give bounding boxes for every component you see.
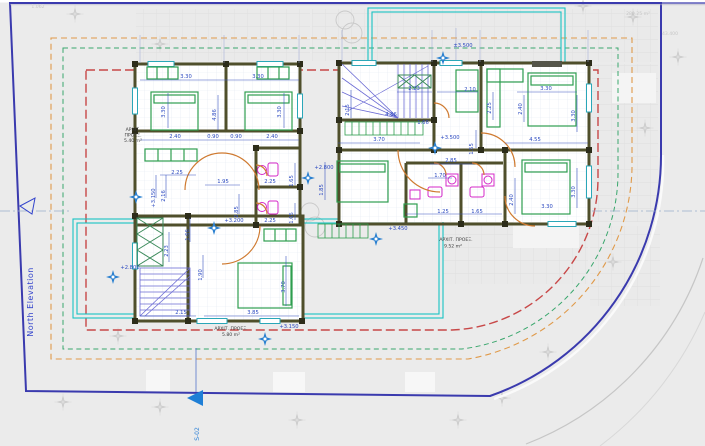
dim-label: 2.40 [518, 103, 524, 115]
dim-label: 2.16 [161, 190, 167, 202]
plot-dim-label: 43.400 [662, 31, 678, 37]
dim-label: 2.85 [445, 158, 457, 164]
level-label: +3.500 [440, 135, 459, 141]
level-label: +3.150 [279, 324, 298, 330]
dim-label: 3.30 [277, 106, 283, 118]
dim-label: 1.65 [289, 175, 295, 187]
dim-label: 2.85 [234, 206, 240, 218]
dim-label: 2.15 [175, 310, 187, 316]
dim-label: 3.85 [247, 310, 259, 316]
projection-area: 5.80 m² [222, 332, 240, 338]
plot-dim-label: 1.062 [31, 4, 44, 10]
level-label: +3.150 [151, 188, 157, 207]
dim-label: 3.70 [373, 137, 385, 143]
dim-label: 0.90 [230, 134, 242, 140]
dim-label: 3.30 [180, 74, 192, 80]
plot-area-label: 280.25 m² [626, 11, 650, 17]
dim-label: 2.23 [408, 86, 420, 92]
dim-label: 1.65 [289, 212, 295, 224]
dim-label: 2.25 [264, 218, 276, 224]
level-label: +2.800 [314, 165, 333, 171]
dim-label: 1.70 [434, 173, 446, 179]
dim-label: 1.25 [437, 209, 449, 215]
dim-label: 1.95 [217, 179, 229, 185]
dim-label: 2.40 [266, 134, 278, 140]
dim-label: 4.55 [529, 137, 541, 143]
projection-area: 5.40 m² [124, 138, 142, 144]
dim-label: 3.30 [571, 186, 577, 198]
dim-label: 3.30 [571, 110, 577, 122]
dim-label: 1.66 [417, 120, 429, 126]
section-label: S-02 [194, 427, 201, 441]
level-label: +3.450 [388, 226, 407, 232]
level-label: +2.800 [120, 265, 139, 271]
dim-label: 2.40 [169, 134, 181, 140]
projection-label: ΑΡΧΙΤ. ΠΡΟΕΞ. [214, 326, 247, 332]
elevation-label: North Elevation [26, 267, 35, 337]
dim-label: 3.30 [252, 74, 264, 80]
dim-label: 2.10 [464, 87, 476, 93]
site-level-label: ±3.500 [453, 43, 472, 49]
dim-label: 2.25 [487, 102, 493, 114]
dim-label: 1.66 [185, 229, 191, 241]
shaded-window-band [532, 61, 562, 67]
projection-label: ΑΡΧΙΤ. [126, 127, 141, 133]
dim-label: 2.23 [164, 245, 170, 257]
level-label: +3.200 [224, 218, 243, 224]
dim-label: 3.30 [540, 86, 552, 92]
dim-label: 3.30 [161, 106, 167, 118]
dim-label: 2.15 [345, 104, 351, 116]
dim-label: 4.86 [212, 109, 218, 121]
projection-area: 9.52 m² [444, 244, 462, 250]
dim-label: 1.85 [319, 184, 325, 196]
dim-label: 2.25 [171, 170, 183, 176]
dim-label: 2.40 [509, 194, 515, 206]
projection-label: ΠΡΟΕΞ. [124, 133, 141, 139]
site-plan-drawing: 3.30 3.30 3.30 3.30 4.86 2.40 0.90 0.90 … [0, 0, 705, 446]
dim-label: 4.86 [385, 112, 397, 118]
dim-label: 0.90 [207, 134, 219, 140]
dim-label: 1.65 [471, 209, 483, 215]
dim-label: 1.55 [469, 143, 475, 155]
dim-label: 3.70 [281, 281, 287, 293]
floor-plan-canvas: 3.30 3.30 3.30 3.30 4.86 2.40 0.90 0.90 … [0, 0, 705, 446]
dim-label: 2.25 [264, 179, 276, 185]
dim-label: 1.90 [198, 269, 204, 281]
dim-label: 3.30 [541, 204, 553, 210]
projection-label: ΑΡΧΙΤ. ΠΡΟΕΞ. [439, 237, 472, 243]
